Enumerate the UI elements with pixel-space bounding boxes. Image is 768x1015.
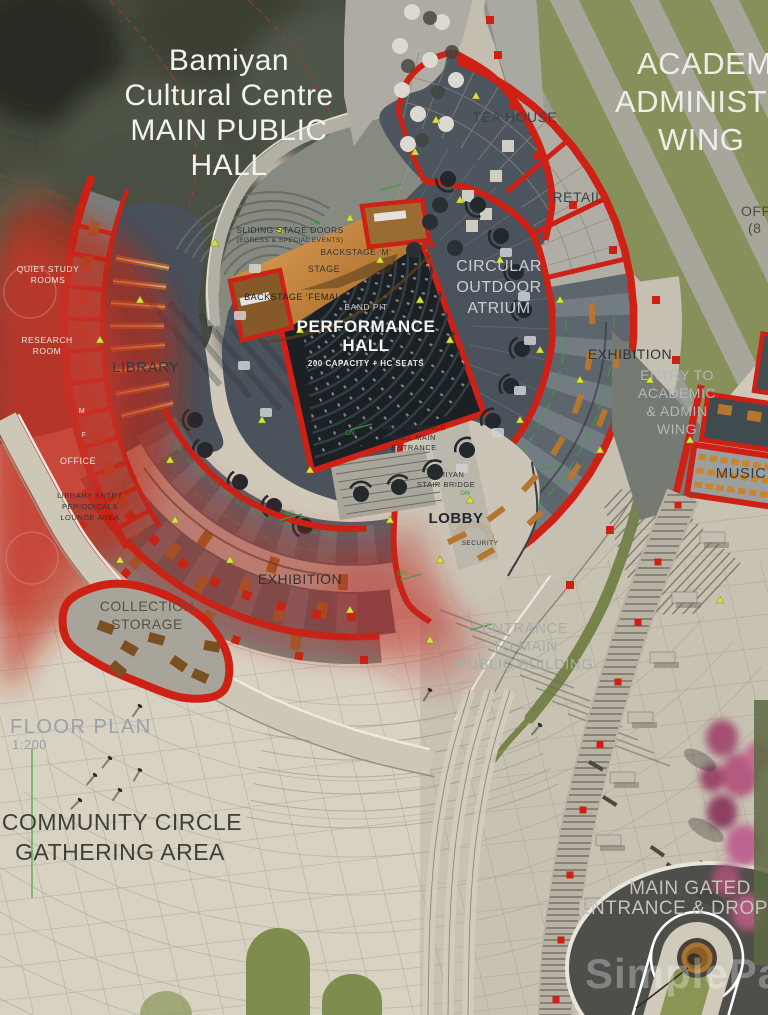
svg-text:ACADEMIC: ACADEMIC: [638, 385, 716, 401]
svg-text:OFFICE: OFFICE: [60, 456, 96, 466]
svg-text:OUTDOOR: OUTDOOR: [456, 279, 541, 296]
svg-text:BAMIYAN: BAMIYAN: [428, 470, 465, 479]
svg-text:ENTRANCE: ENTRANCE: [482, 620, 569, 637]
svg-text:1:200: 1:200: [12, 737, 47, 752]
svg-text:BACKSTAGE ‘M’: BACKSTAGE ‘M’: [320, 247, 391, 257]
svg-text:SLIDING STAGE DOORS: SLIDING STAGE DOORS: [236, 225, 344, 235]
svg-text:PERFORMANCE: PERFORMANCE: [382, 423, 446, 432]
svg-text:PERIODICALS: PERIODICALS: [62, 502, 118, 511]
svg-text:CIRCULAR: CIRCULAR: [456, 258, 542, 275]
svg-text:TO MAIN: TO MAIN: [492, 638, 558, 655]
svg-text:FLOOR PLAN: FLOOR PLAN: [10, 716, 152, 738]
svg-text:ADMINISTRA: ADMINISTRA: [615, 84, 768, 119]
svg-text:QUIET STUDY: QUIET STUDY: [17, 264, 80, 274]
svg-text:ATRIUM: ATRIUM: [467, 300, 530, 317]
svg-text:(EGRESS & SPECIAL EVENTS): (EGRESS & SPECIAL EVENTS): [237, 237, 344, 244]
svg-text:HALL: HALL: [190, 149, 267, 182]
svg-text:LOBBY: LOBBY: [429, 510, 484, 527]
svg-text:UP: UP: [310, 220, 319, 227]
svg-text:STAGE: STAGE: [308, 264, 340, 274]
svg-text:SECURITY: SECURITY: [462, 540, 499, 547]
svg-text:TEA HOUSE: TEA HOUSE: [473, 109, 558, 125]
svg-text:WING: WING: [657, 421, 697, 437]
svg-text:ENTRY TO: ENTRY TO: [640, 367, 714, 383]
svg-text:SimplePage: SimplePage: [585, 950, 768, 997]
svg-text:ROOM: ROOM: [33, 346, 61, 356]
svg-text:BAND PIT: BAND PIT: [344, 302, 387, 312]
svg-text:BACKSTAGE ‘FEMALE’: BACKSTAGE ‘FEMALE’: [244, 292, 350, 302]
svg-text:OFFICE: OFFICE: [741, 203, 768, 219]
svg-text:& ADMIN: & ADMIN: [646, 403, 707, 419]
svg-text:GATHERING AREA: GATHERING AREA: [15, 839, 225, 865]
svg-text:EXHIBITION: EXHIBITION: [588, 346, 672, 362]
svg-text:LIBRARY: LIBRARY: [112, 359, 179, 376]
svg-text:MAIN GATED: MAIN GATED: [629, 878, 751, 899]
svg-text:HALL: HALL: [342, 336, 389, 355]
svg-text:200 CAPACITY + HC SEATS: 200 CAPACITY + HC SEATS: [308, 359, 424, 368]
svg-text:COLLECTION: COLLECTION: [100, 598, 194, 614]
svg-text:STAIR BRIDGE: STAIR BRIDGE: [417, 480, 475, 489]
svg-text:WING: WING: [658, 122, 744, 157]
svg-text:ENTRANCE & DROP-OF: ENTRANCE & DROP-OF: [578, 898, 768, 919]
svg-text:RESEARCH: RESEARCH: [21, 335, 72, 345]
svg-text:ROOMS: ROOMS: [31, 275, 66, 285]
svg-text:(8: (8: [748, 220, 761, 236]
svg-text:DN: DN: [345, 430, 355, 437]
svg-text:Cultural Centre: Cultural Centre: [124, 79, 333, 112]
svg-text:MUSIC: MUSIC: [716, 465, 767, 482]
svg-text:STORAGE: STORAGE: [111, 616, 183, 632]
svg-text:DN: DN: [397, 570, 407, 577]
svg-text:MAIN PUBLIC: MAIN PUBLIC: [130, 114, 327, 147]
svg-text:LOUNGE AREA: LOUNGE AREA: [60, 513, 119, 522]
svg-text:PERFORMANCE: PERFORMANCE: [297, 317, 436, 336]
svg-text:EXHIBITION: EXHIBITION: [258, 571, 342, 587]
svg-text:RETAIL: RETAIL: [553, 189, 604, 205]
svg-text:COMMUNITY CIRCLE: COMMUNITY CIRCLE: [2, 809, 242, 835]
svg-text:F: F: [82, 432, 87, 439]
svg-text:Bamiyan: Bamiyan: [169, 44, 289, 77]
svg-text:PUBLIC BUILDING: PUBLIC BUILDING: [457, 656, 594, 673]
svg-text:LIBRARY ENTRY: LIBRARY ENTRY: [57, 491, 123, 500]
svg-text:DN: DN: [460, 490, 470, 497]
svg-text:ACADEMIC: ACADEMIC: [637, 46, 768, 81]
svg-text:ENTRANCE: ENTRANCE: [391, 443, 436, 452]
svg-text:HALL MAIN: HALL MAIN: [392, 433, 436, 442]
svg-text:M: M: [79, 408, 85, 415]
svg-text:UP: UP: [285, 510, 294, 517]
